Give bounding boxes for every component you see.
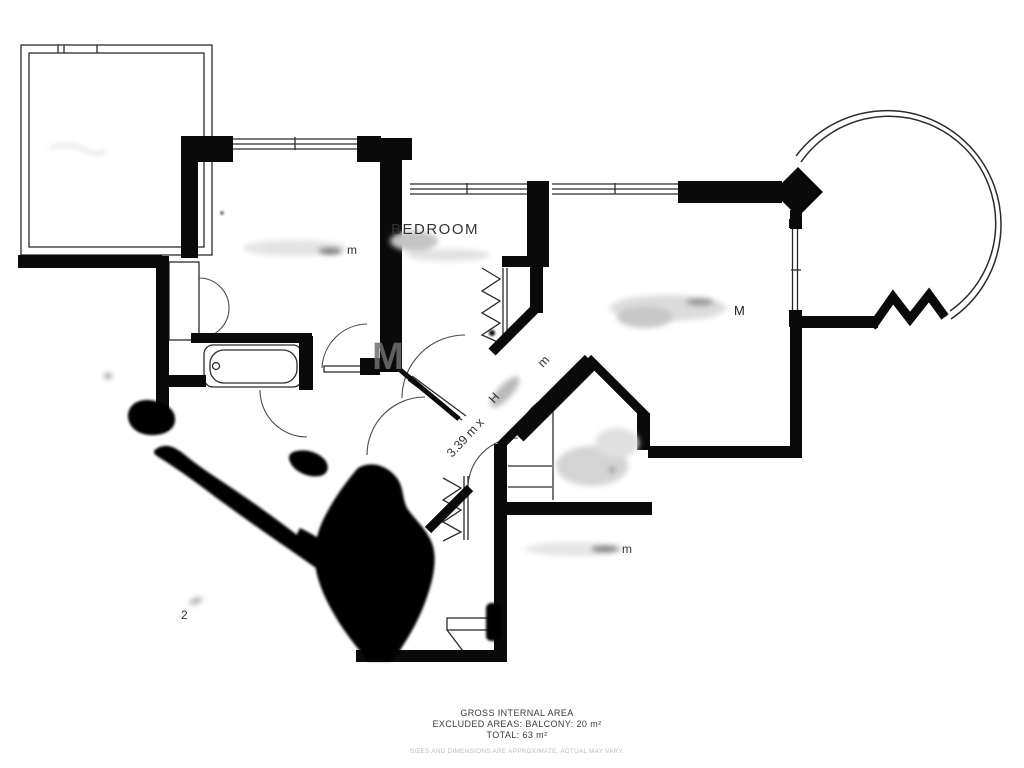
living-room-east-wall [800,316,878,328]
bathroom-right-wall [299,336,313,390]
bathroom-bottom-wall [163,375,206,387]
footer-disclaimer: SIZES AND DIMENSIONS ARE APPROXIMATE, AC… [410,748,624,755]
hall-dimension: 3.39 m x [444,415,487,460]
bedroom-door-arc [402,335,465,398]
floor-plan-image: BEDROOM H 3.39 m x m m m M M 2 GROSS INT… [0,0,1024,768]
footer-text: GROSS INTERNAL AREA EXCLUDED AREAS: BALC… [410,708,624,755]
bathtub [204,345,302,387]
hall-door-arc [468,438,518,488]
bedroom-label: BEDROOM [391,221,479,238]
left-bedroom-window [233,137,357,150]
handwritten-mark: 2 [181,608,188,622]
bottom-room-door-arc [367,397,425,455]
kitchen-right-wall [637,413,650,450]
living-room-remnant: M [734,303,745,318]
ink-blob-wall-2 [486,603,501,641]
ink-speck [221,212,224,215]
hall-dimension-unit: m [535,353,552,370]
living-room-top-wall [678,181,782,203]
broken-wall-zigzag [872,295,945,327]
footer-total: TOTAL: 63 m² [487,730,548,740]
living-room-window-right [791,227,801,316]
ink-speck [489,330,495,336]
hall-door-leaf [399,369,459,419]
watermark-letter: M [372,336,404,378]
ink-blob-small [289,450,328,476]
plan-text: BEDROOM H 3.39 m x m m m M M 2 [181,221,745,622]
floorplan-scan-page: BEDROOM H 3.39 m x m m m M M 2 GROSS INT… [0,0,1024,768]
footer-gross-area: GROSS INTERNAL AREA [460,708,573,718]
hall-upper-wall [492,308,536,352]
tub-room-door-arc [260,390,307,437]
bedroom-right-wall [527,181,549,258]
walls [18,136,945,662]
windows [233,137,801,316]
terrace-bottom-wall [18,255,162,268]
bottom-room-remnant: m [622,542,632,556]
window-cap [789,219,802,228]
living-room-right-wall [790,327,802,458]
living-room-bottom-wall [648,446,802,458]
corner-diamond [773,167,823,217]
circular-balcony [796,111,1001,319]
ink-stains [128,212,501,662]
hall-lower-wall [520,364,594,438]
closet [169,262,199,340]
bathroom-top-wall [191,333,312,343]
left-bedroom-pier [181,136,233,162]
kitchen-right-slope [588,358,646,416]
ink-blob-main [315,464,435,661]
closet-door-arc [199,278,229,308]
left-bedroom-remnant: m [347,243,357,257]
kitchen-left-slope [500,358,588,446]
living-room-window-top [552,183,678,194]
bedroom-window [410,183,527,194]
footer-excluded-areas: EXCLUDED AREAS: BALCONY: 20 m² [432,719,601,729]
bedroom-wall-jog [502,256,549,267]
kitchen-bottom-wall [494,502,652,515]
bedroom-pier [372,138,412,160]
